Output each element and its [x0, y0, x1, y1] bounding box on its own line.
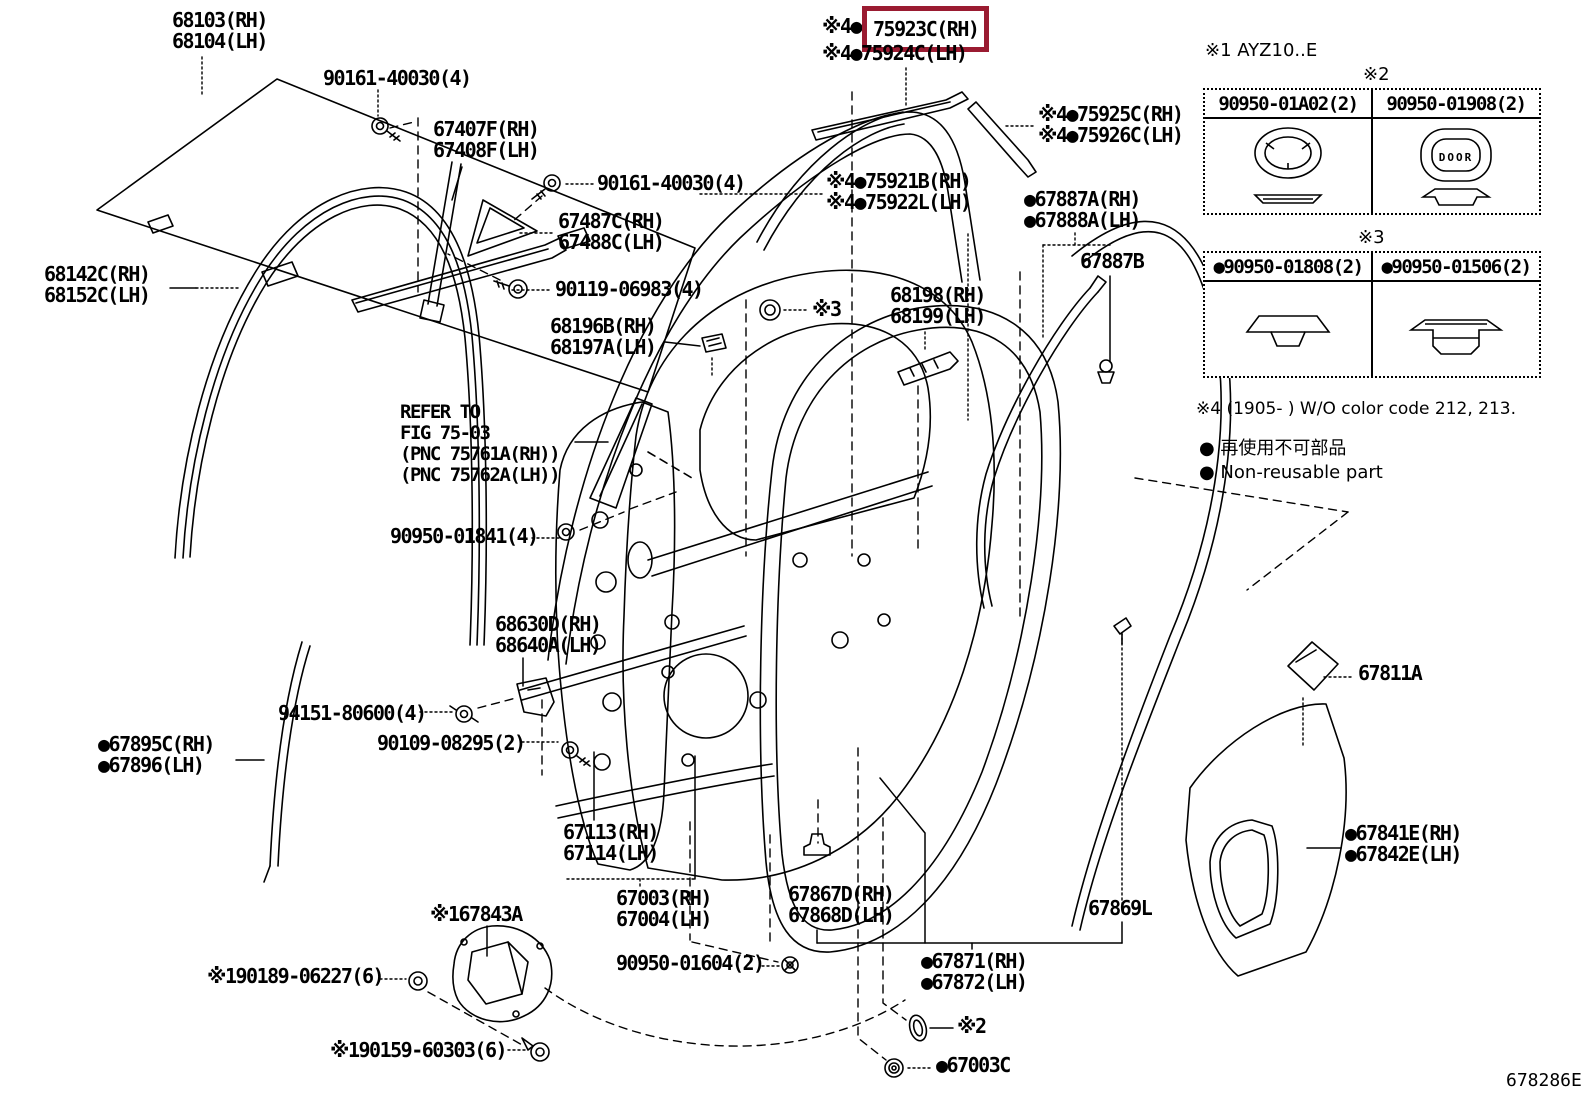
grommet-icon — [760, 300, 780, 320]
label-90189-06227: ※190189-06227(6) — [207, 966, 383, 987]
label-67869L: 67869L — [1088, 898, 1151, 919]
label-67887A: ●67887A(RH)●67888A(LH) — [1024, 189, 1140, 231]
table3-col1-header: ●90950-01808(2) — [1205, 253, 1371, 280]
note-model-code: ※1 AYZ10..E — [1205, 40, 1317, 61]
label-67843A: ※167843A — [430, 904, 522, 925]
label-67407F: 67407F(RH)67408F(LH) — [433, 119, 538, 161]
washer-icon — [885, 1059, 903, 1077]
label-75921B: ※4●75921B(RH)※4●75922L(LH) — [826, 171, 970, 213]
label-68142C: 68142C(RH)68152C(LH) — [44, 264, 149, 306]
label-94151-80600: 94151-80600(4) — [278, 703, 426, 724]
note-mark2: ※2 — [1363, 64, 1390, 85]
leader-lines-dotted — [196, 57, 1354, 1068]
label-75925C: ※4●75925C(RH)※4●75926C(LH) — [1038, 104, 1182, 146]
label-75923C: 75923C(RH) — [873, 17, 978, 41]
label-67113: 67113(RH)67114(LH) — [563, 822, 658, 864]
label-90109-08295: 90109-08295(2) — [377, 733, 525, 754]
parts-diagram-rear-door: 68103(RH)68104(LH) 90161-40030(4) 67407F… — [0, 0, 1592, 1099]
label-75923C-prefix: ※4● — [822, 16, 861, 37]
table2-col1-header: 90950-01A02(2) — [1205, 90, 1371, 117]
clip-icon — [804, 834, 830, 855]
bolt-icon — [494, 280, 527, 298]
label-90161-40030-b: 90161-40030(4) — [597, 173, 745, 194]
label-67003: 67003(RH)67004(LH) — [616, 888, 711, 930]
label-90950-01604: 90950-01604(2) — [616, 953, 764, 974]
label-90161-40030-a: 90161-40030(4) — [323, 68, 471, 89]
figure-code: 678286E — [1506, 1070, 1582, 1091]
grommet-oval-icon — [1205, 119, 1371, 213]
label-67003C: ●67003C — [936, 1055, 1010, 1076]
svg-text:DOOR: DOOR — [1439, 151, 1474, 164]
rear-door-moulding-part — [264, 642, 310, 882]
label-note2-ref: ※2 — [957, 1016, 985, 1037]
clip-table-note2: 90950-01A02(2) 90950-01908(2) DOOR — [1203, 88, 1541, 215]
label-refer-fig: REFER TOFIG 75-03 (PNC 75761A(RH))(PNC 7… — [400, 402, 559, 486]
washer-icon — [782, 957, 798, 973]
clip-icon — [450, 706, 478, 722]
note-color-code: ※4 (1905- ) W/O color code 212, 213. — [1196, 399, 1516, 419]
label-67487C: 67487C(RH)67488C(LH) — [558, 211, 663, 253]
service-hole-cover-part — [1186, 704, 1346, 976]
leader-lines-solid — [170, 167, 1341, 1028]
label-67841E: ●67841E(RH)●67842E(LH) — [1345, 823, 1461, 865]
label-90950-01841: 90950-01841(4) — [390, 526, 538, 547]
label-90159-60303: ※190159-60303(6) — [330, 1040, 506, 1061]
label-67867D: 67867D(RH)67868D(LH) — [788, 884, 893, 926]
label-67811A: 67811A — [1358, 663, 1421, 684]
label-68103: 68103(RH)68104(LH) — [172, 10, 267, 52]
division-bar-part — [420, 162, 461, 322]
hole-plug-icon — [1371, 282, 1539, 376]
label-67895C: ●67895C(RH)●67896(LH) — [98, 734, 214, 776]
grommet-oval-icon — [907, 1013, 929, 1042]
label-90119-06983: 90119-06983(4) — [555, 279, 703, 300]
table3-col2-header: ●90950-01506(2) — [1371, 253, 1539, 280]
label-68196B: 68196B(RH)68197A(LH) — [550, 316, 655, 358]
label-67887B: 67887B — [1080, 251, 1143, 272]
screw-icon — [522, 1038, 549, 1061]
door-cushion-part — [1288, 642, 1338, 690]
note-mark3: ※3 — [1358, 227, 1385, 248]
hole-plug-icon — [1205, 282, 1371, 376]
clip-icon — [1098, 360, 1114, 383]
label-75924C: ※4●75924C(LH) — [822, 43, 966, 64]
bolt-icon — [562, 742, 590, 766]
grommet-icon — [558, 524, 574, 540]
note-nonreusable-en: ● Non-reusable part — [1199, 462, 1383, 483]
access-hole-cover-part — [453, 926, 552, 1022]
clip-icon — [702, 334, 726, 352]
label-note3-ref: ※3 — [812, 299, 840, 320]
label-68198: 68198(RH)68199(LH) — [890, 285, 985, 327]
plug-table-note3: ●90950-01808(2) ●90950-01506(2) — [1203, 251, 1541, 378]
door-grommet-icon: DOOR — [1371, 119, 1539, 213]
screw-icon — [532, 175, 560, 199]
table2-col2-header: 90950-01908(2) — [1371, 90, 1539, 117]
label-68630D: 68630D(RH)68640A(LH) — [495, 614, 600, 656]
screw-icon — [372, 118, 400, 141]
beltline-retainer-part — [898, 352, 958, 385]
note-nonreusable-jp: ● 再使用不可部品 — [1199, 434, 1346, 460]
grommet-icon — [409, 972, 427, 990]
label-67871: ●67871(RH)●67872(LH) — [921, 951, 1026, 993]
